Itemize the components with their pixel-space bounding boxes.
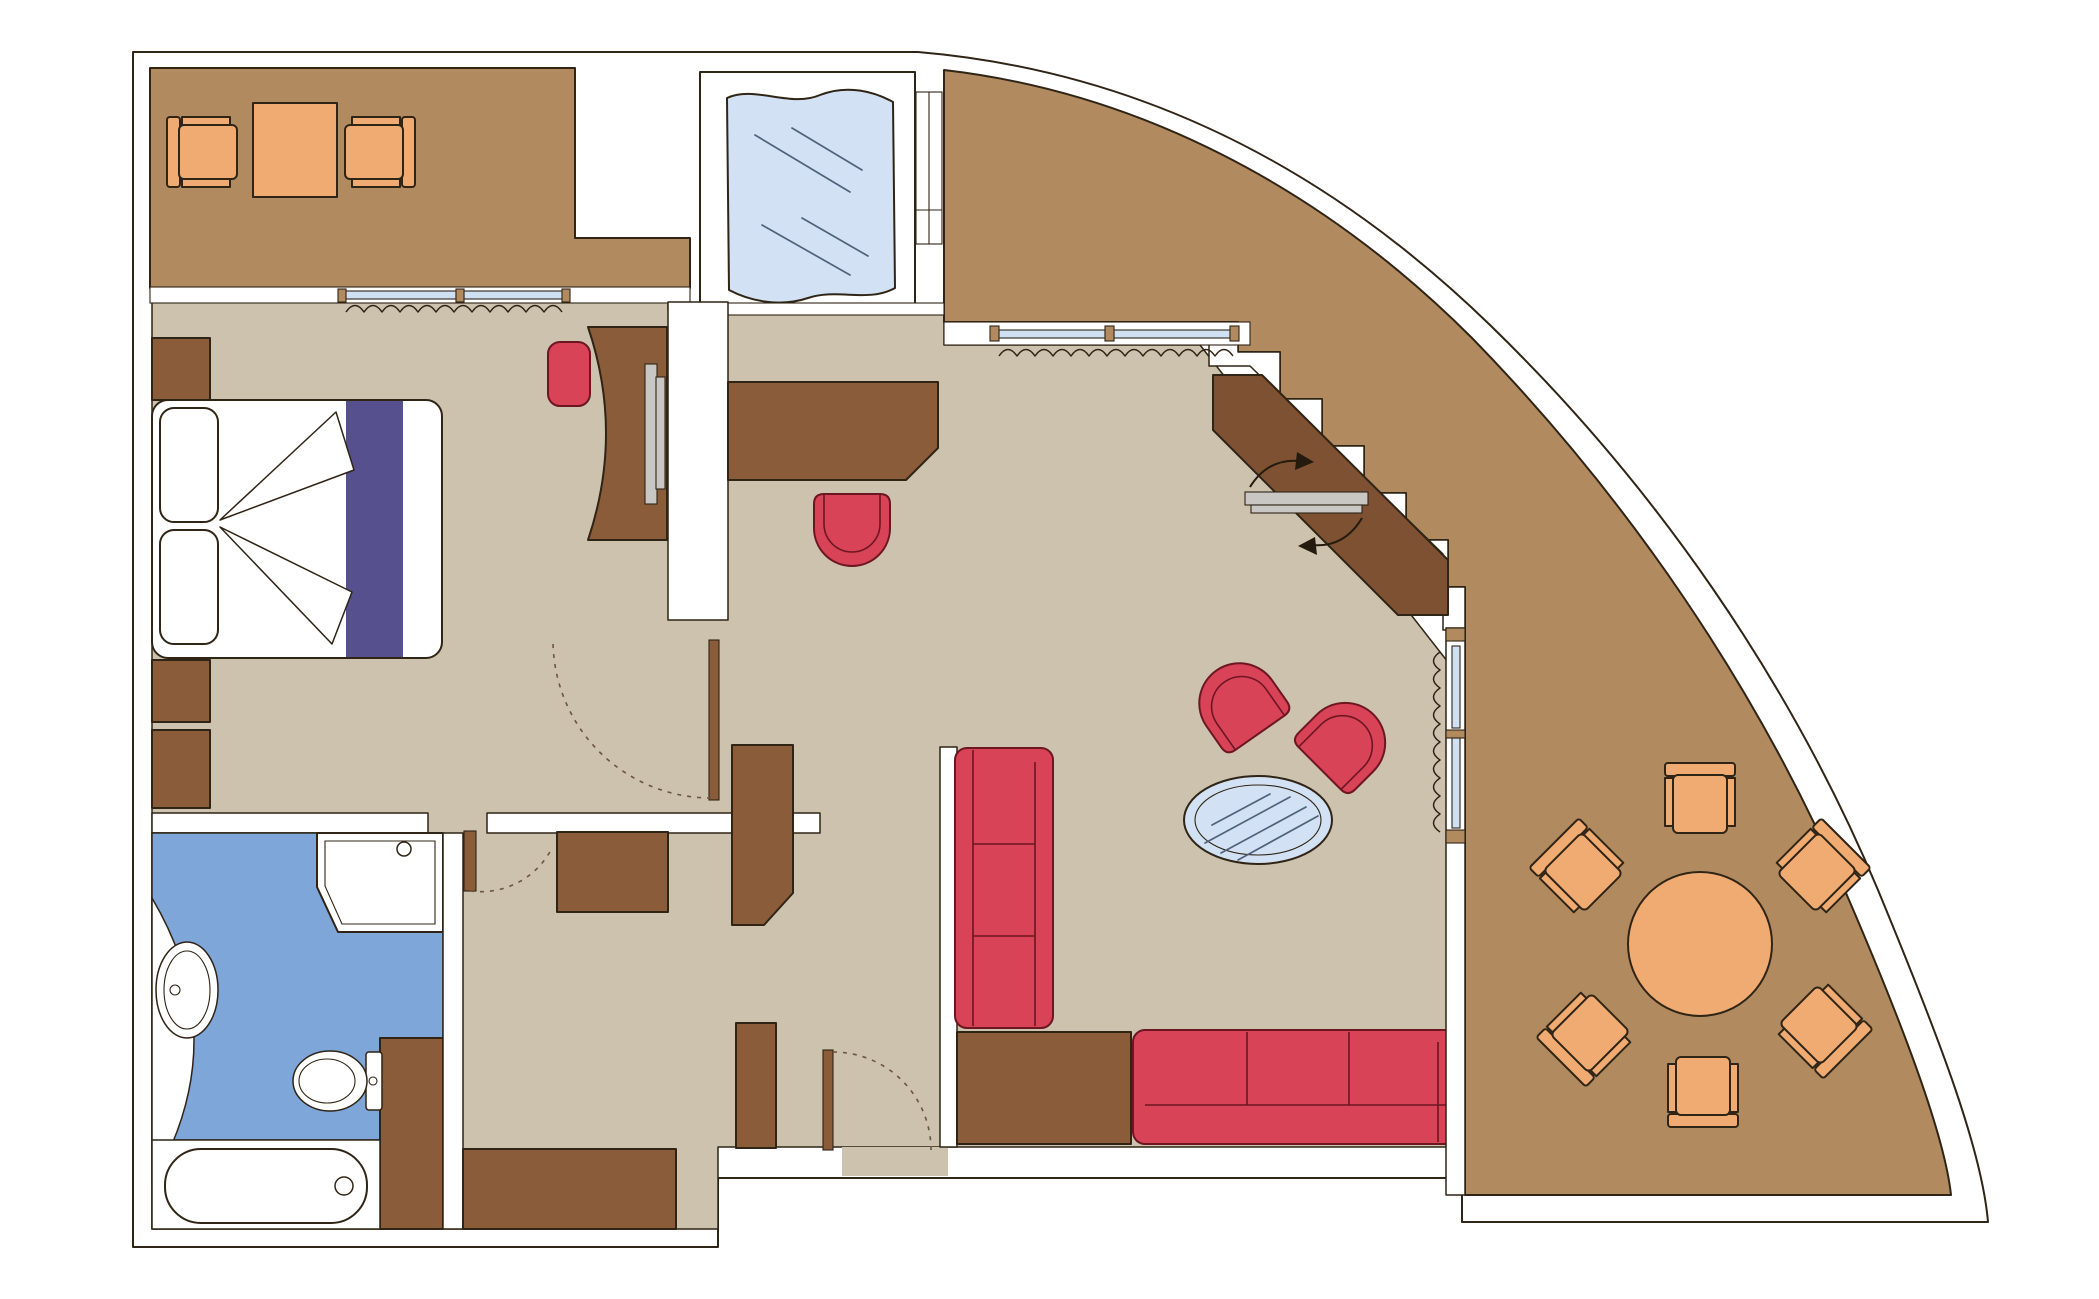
bath-cabinet xyxy=(380,1038,443,1229)
pillow-2 xyxy=(160,530,218,644)
round-dining-table xyxy=(1628,872,1772,1016)
toilet-button xyxy=(369,1077,377,1085)
dining-chair-n xyxy=(1665,763,1735,833)
living-window-glass-1 xyxy=(999,330,1105,338)
whirlpool-bottom-wall xyxy=(700,303,944,315)
terrace-window-jamb-top xyxy=(1446,628,1465,641)
shower-cabin xyxy=(317,833,443,932)
sofa-vertical xyxy=(955,748,1053,1028)
balcony-table xyxy=(253,103,337,197)
terrace-window-jamb-bottom xyxy=(1446,830,1465,843)
bedroom-window-glass-1 xyxy=(346,291,456,299)
bedroom-tv-panel xyxy=(645,364,657,504)
nightstand-bottom-1 xyxy=(152,660,210,722)
living-window-jamb-right xyxy=(1230,326,1239,341)
chair-seat xyxy=(179,125,237,179)
bedroom-desk-chair xyxy=(548,342,590,406)
entry-closet xyxy=(463,1149,676,1229)
hall-wardrobe xyxy=(732,745,793,925)
floor-plan-page xyxy=(0,0,2099,1299)
bedroom-window-jamb-right xyxy=(562,289,570,302)
hall-closet-column xyxy=(736,1023,776,1148)
living-room-window xyxy=(944,322,1250,345)
living-window-jamb-left xyxy=(990,326,999,341)
balcony-armchair-2 xyxy=(345,117,415,187)
washbasin xyxy=(156,942,218,1038)
whirlpool-side-frames xyxy=(916,92,942,244)
pillow-1 xyxy=(160,408,218,522)
bed-runner xyxy=(346,400,403,658)
living-window-glass-2 xyxy=(1114,330,1230,338)
terrace-window-glass-2 xyxy=(1452,738,1460,828)
bath-top-wall-left xyxy=(152,813,428,833)
toilet-bowl xyxy=(293,1051,367,1111)
chair-seat xyxy=(1673,775,1727,833)
swivel-tv xyxy=(1245,492,1368,505)
bedroom-window-glass-2 xyxy=(464,291,562,299)
entry-door-leaf xyxy=(823,1050,833,1150)
chair-seat xyxy=(345,125,403,179)
bedroom-window-jamb-mid xyxy=(456,289,464,302)
shower-head xyxy=(397,842,411,856)
whirlpool-deck xyxy=(700,72,944,315)
bedroom-door-leaf xyxy=(709,640,719,800)
bathroom-right-wall xyxy=(443,833,463,1229)
bathtub-drain xyxy=(335,1177,353,1195)
entry-threshold-floor xyxy=(842,1147,948,1176)
bathroom xyxy=(152,833,443,1229)
floor-plan xyxy=(0,0,2099,1299)
living-console-desk xyxy=(728,382,938,480)
terrace-window-glass-1 xyxy=(1452,646,1460,728)
washbasin-tap xyxy=(170,985,180,995)
bedroom-window xyxy=(150,287,690,303)
balcony-armchair-1 xyxy=(167,117,237,187)
nightstand-bottom-2 xyxy=(152,730,210,808)
sideboard xyxy=(957,1032,1131,1144)
swivel-tv-base xyxy=(1251,505,1362,513)
chair-seat xyxy=(1676,1057,1730,1115)
living-window-jamb-mid xyxy=(1105,326,1114,341)
bathroom-door-leaf xyxy=(464,831,476,891)
dining-chair-s xyxy=(1668,1057,1738,1127)
terrace-window-jamb-mid xyxy=(1446,730,1465,738)
bedroom-tv-panel-2 xyxy=(656,377,665,489)
living-desk-chair xyxy=(814,494,890,566)
nightstand-top xyxy=(152,338,210,400)
bedroom-window-jamb-left xyxy=(338,289,346,302)
sofa-horizontal xyxy=(1133,1030,1460,1144)
balcony-lounge xyxy=(167,103,415,197)
whirlpool-glass-tub xyxy=(727,90,895,303)
central-wall xyxy=(668,302,728,620)
hall-dresser xyxy=(557,832,668,912)
